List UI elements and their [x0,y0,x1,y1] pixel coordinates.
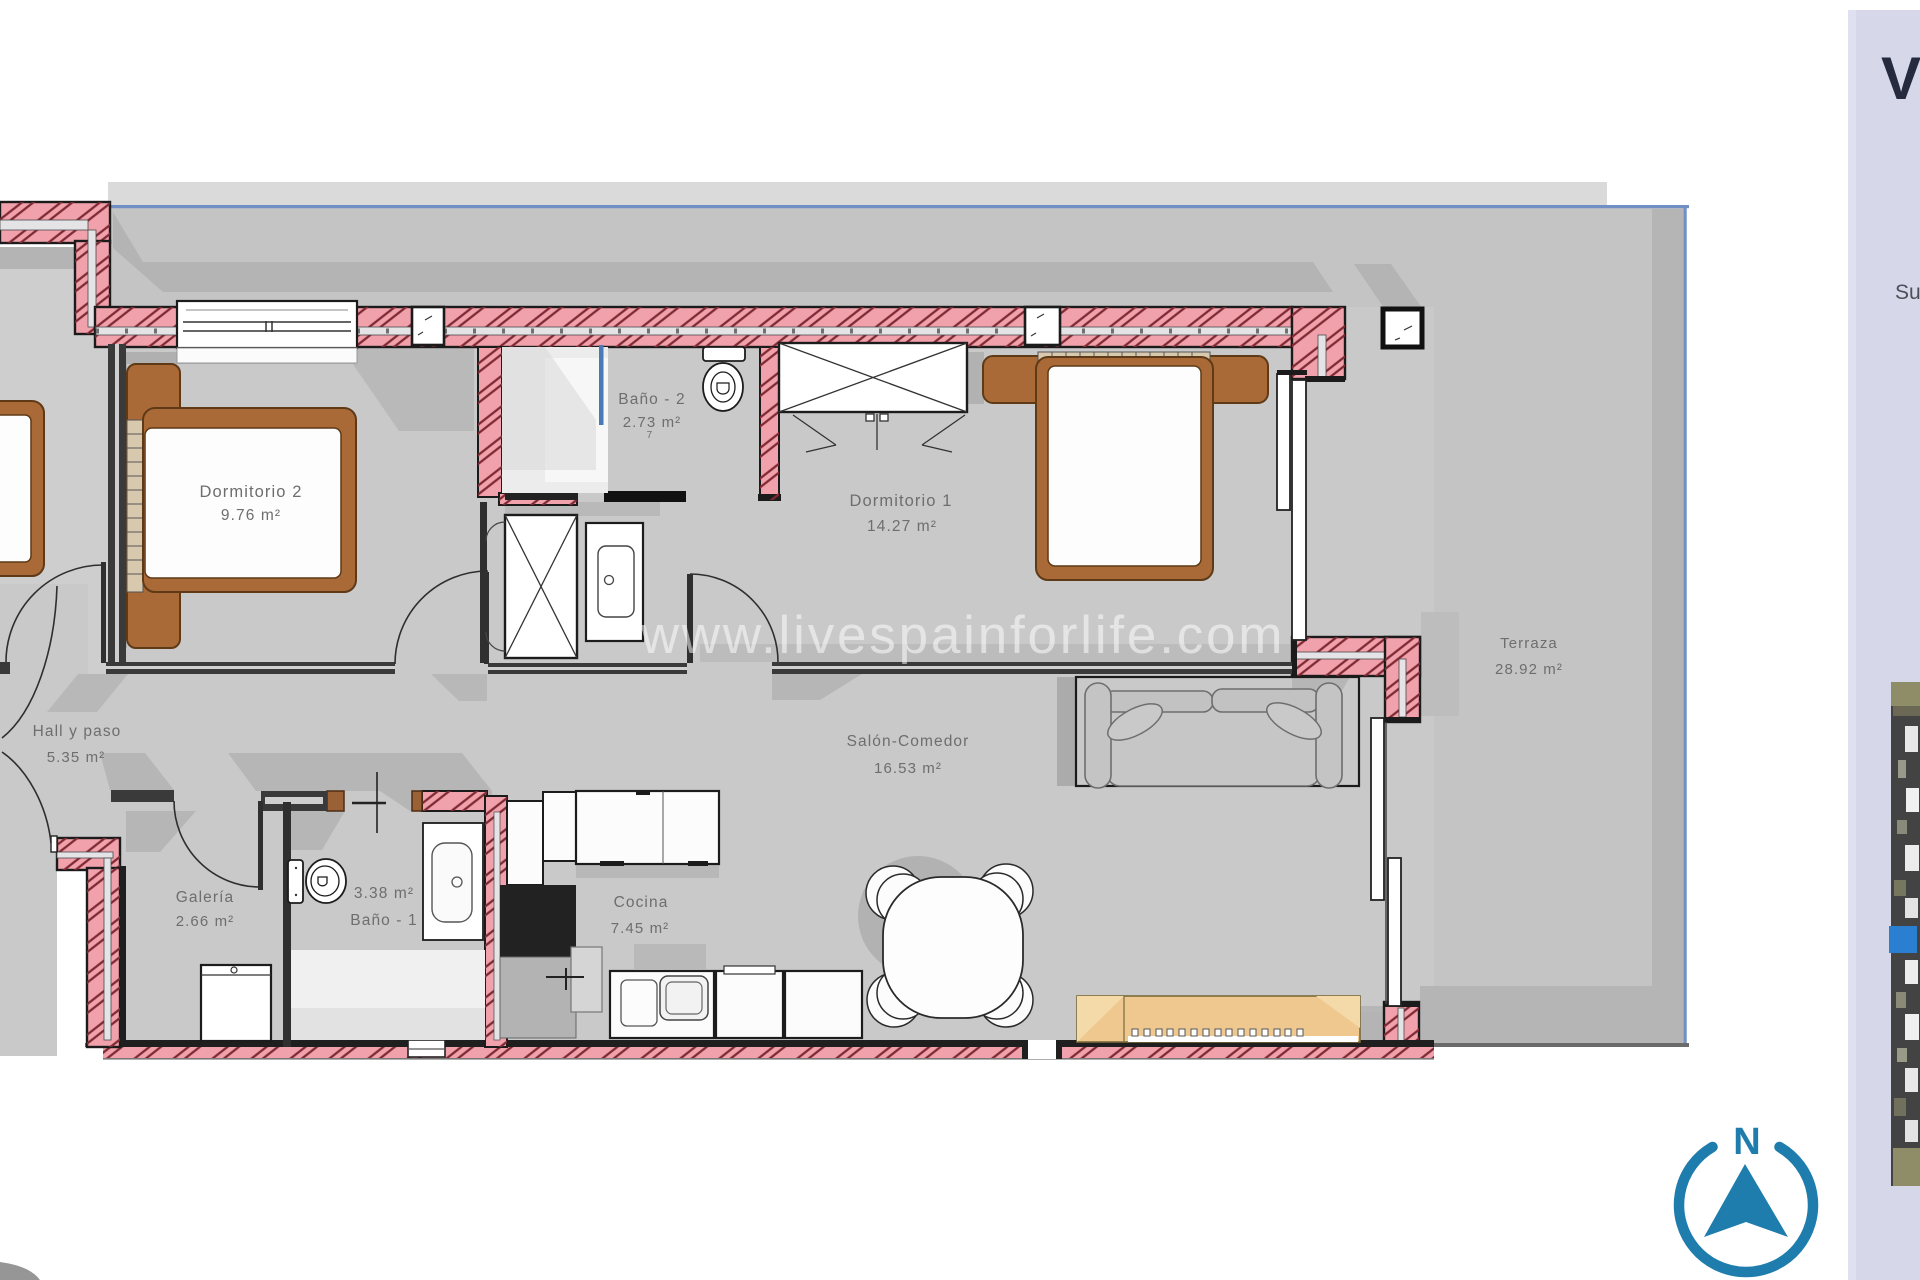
svg-text:Hall y paso: Hall y paso [33,723,122,740]
svg-text:Dormitorio 1: Dormitorio 1 [849,492,952,510]
svg-text:Baño - 2: Baño - 2 [618,391,685,408]
svg-text:3.38 m²: 3.38 m² [354,885,414,902]
svg-text:7: 7 [647,430,654,441]
svg-text:Galería: Galería [176,889,235,906]
svg-text:14.27 m²: 14.27 m² [867,518,937,535]
svg-text:N: N [1733,1121,1760,1163]
svg-text:Dormitorio 2: Dormitorio 2 [199,483,302,501]
svg-text:2.66 m²: 2.66 m² [176,913,235,930]
svg-text:V: V [1881,45,1920,112]
svg-text:5.35 m²: 5.35 m² [47,749,106,766]
svg-text:Salón-Comedor: Salón-Comedor [847,733,970,750]
svg-text:Su: Su [1895,281,1920,304]
svg-text:Cocina: Cocina [614,894,669,911]
svg-text:Baño - 1: Baño - 1 [350,912,417,929]
svg-text:28.92 m²: 28.92 m² [1495,661,1563,678]
svg-text:Terraza: Terraza [1500,635,1558,652]
svg-text:16.53 m²: 16.53 m² [874,760,942,777]
svg-text:9.76 m²: 9.76 m² [221,507,281,524]
svg-text:www.livespainforlife.com: www.livespainforlife.com [640,606,1286,665]
svg-text:7.45 m²: 7.45 m² [611,920,670,937]
svg-text:2.73 m²: 2.73 m² [623,414,682,431]
